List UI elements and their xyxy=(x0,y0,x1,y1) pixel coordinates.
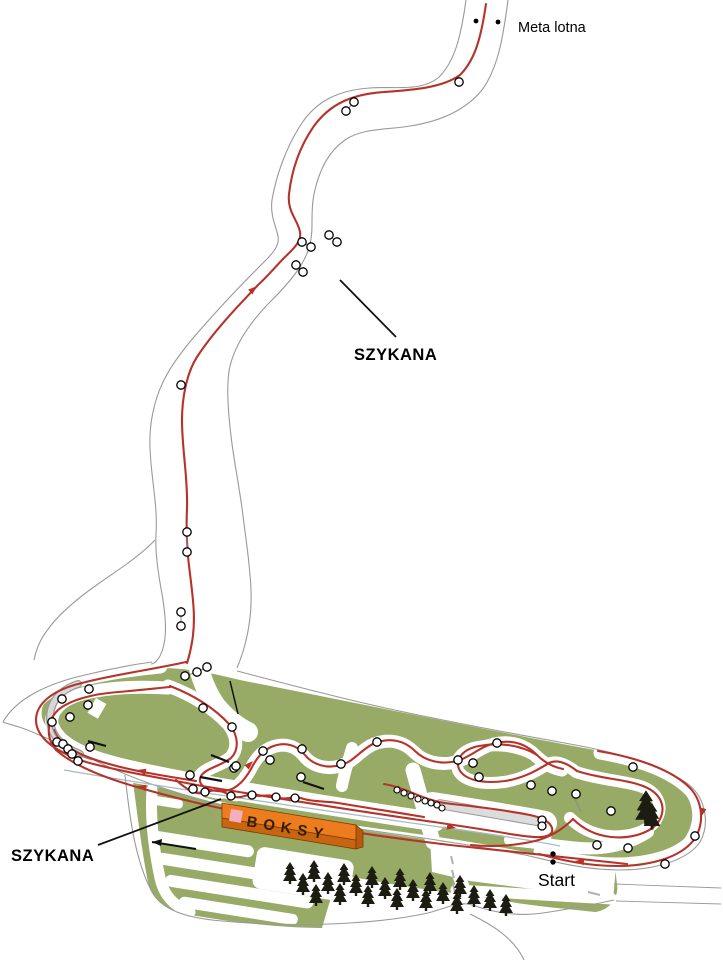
finish-line-dot xyxy=(496,20,501,25)
track-map-canvas: BOKSY Meta lotna SZYKANA SZYKANA Start xyxy=(0,0,723,960)
label-szykana-bottom: SZYKANA xyxy=(11,847,94,865)
track-map: BOKSY Meta lotna SZYKANA SZYKANA Start xyxy=(0,0,723,960)
label-szykana-top: SZYKANA xyxy=(354,346,437,364)
label-meta-lotna: Meta lotna xyxy=(518,20,587,36)
pit-building-pink-unit xyxy=(229,809,243,823)
start-line-dot xyxy=(550,851,555,856)
finish-line-dot xyxy=(474,19,479,24)
label-start: Start xyxy=(538,870,575,890)
start-line-dot xyxy=(550,859,555,864)
